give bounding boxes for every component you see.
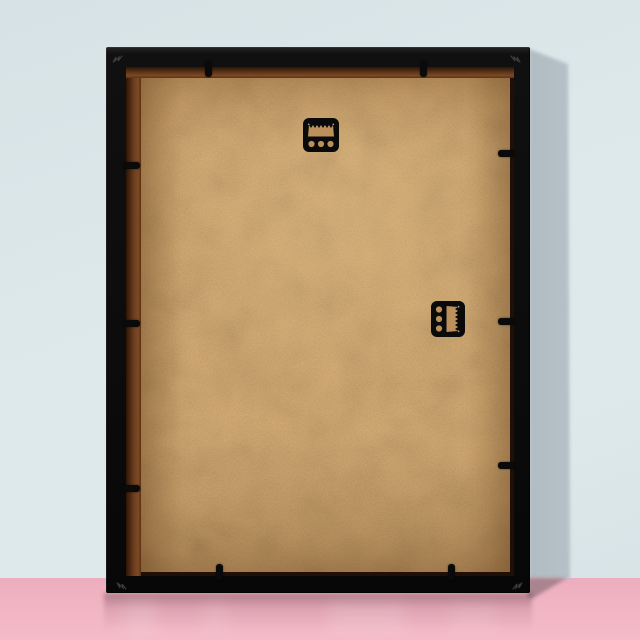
- retaining-tab-right: [498, 318, 515, 325]
- retaining-tab-bottom: [448, 564, 455, 580]
- picture-frame-back: [106, 47, 530, 593]
- retaining-tab-left: [123, 162, 140, 169]
- retaining-tab-bottom: [216, 564, 223, 580]
- floor-gloss-streak: [205, 602, 225, 632]
- sawtooth-hanger-side: [430, 300, 466, 338]
- vnail-mark-bottom-left: [115, 580, 129, 592]
- scene: [0, 0, 640, 640]
- retaining-tab-left: [123, 320, 140, 327]
- retaining-tab-right: [498, 462, 515, 469]
- vnail-mark-top-right: [508, 53, 522, 65]
- floor-gloss-streak: [330, 602, 404, 634]
- sawtooth-hanger-top: [302, 117, 340, 153]
- vnail-mark-bottom-right: [510, 580, 524, 592]
- retaining-tab-right: [498, 150, 515, 157]
- floor-gloss-streak: [126, 600, 156, 636]
- rabbet-shadow-top: [126, 67, 514, 78]
- retaining-tab-left: [123, 485, 140, 492]
- retaining-tab-top: [420, 61, 427, 77]
- floor-gloss-streak: [452, 604, 494, 630]
- retaining-tab-top: [205, 61, 212, 77]
- vnail-mark-top-left: [111, 53, 125, 65]
